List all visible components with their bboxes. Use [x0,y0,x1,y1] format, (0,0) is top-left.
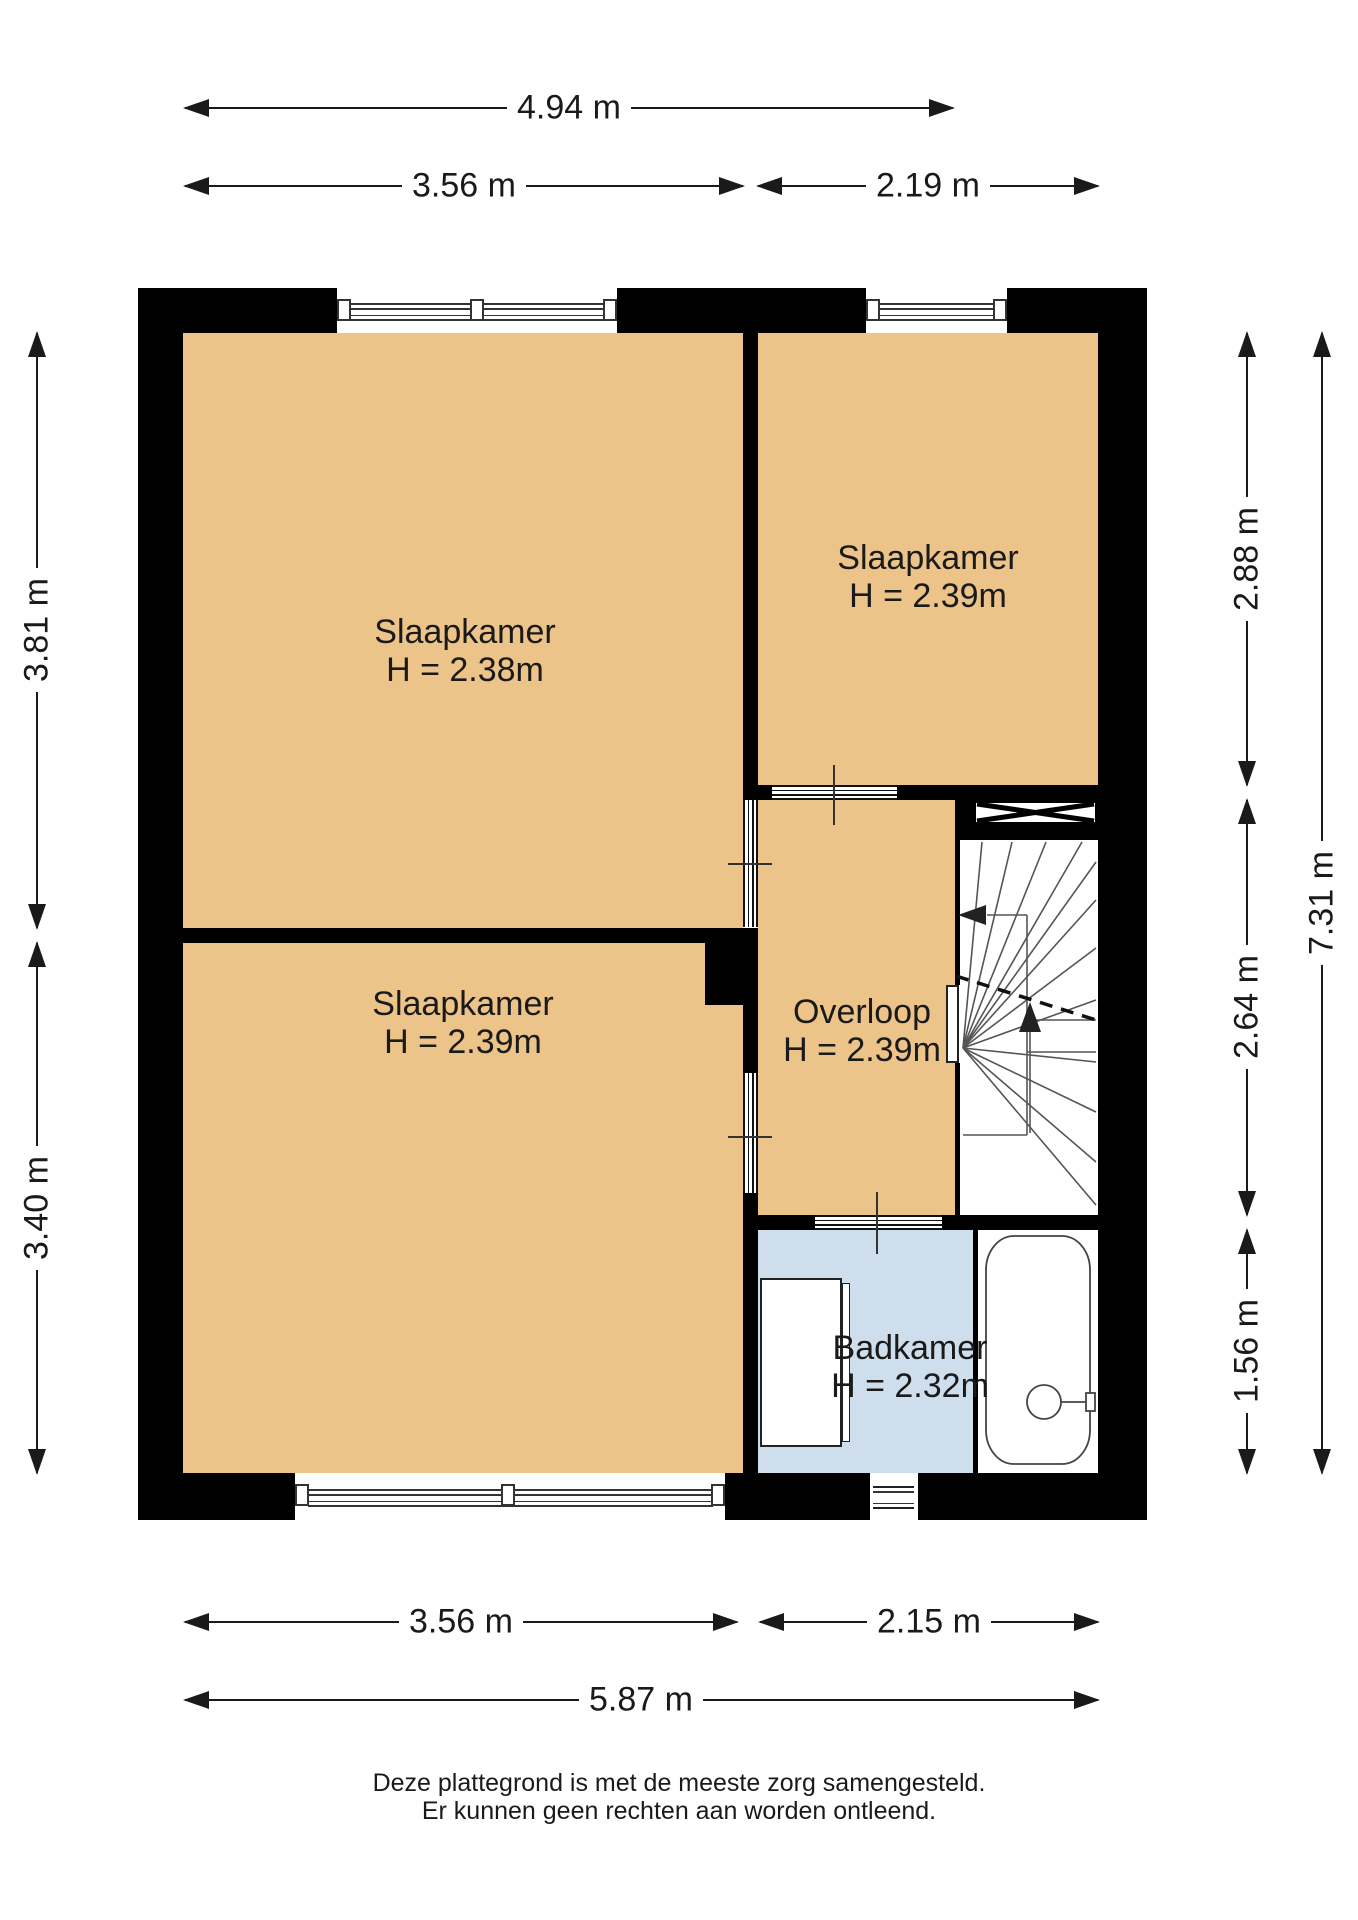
dimension-label-top-overall: 4.94 m [507,89,631,128]
washbasin-vanity [760,1278,842,1447]
bathtub [986,1236,1090,1464]
room-label-bedroom-top-right: Slaapkamer H = 2.39m [837,539,1018,615]
dimension-label-bottom-overall: 5.87 m [579,1681,703,1720]
disclaimer-text: Deze plattegrond is met de meeste zorg s… [373,1769,986,1825]
stair-arrow-up-icon [958,905,986,925]
dimension-label-right-middle: 2.64 m [1228,945,1267,1069]
shower-bracket [1086,1393,1095,1411]
dimension-label-top-left: 3.56 m [402,167,526,206]
room-height: H = 2.32m [831,1367,989,1405]
room-label-bedroom-bottom-left: Slaapkamer H = 2.39m [372,985,553,1061]
room-name: Badkamer [831,1329,989,1367]
disclaimer-line-2: Er kunnen geen rechten aan worden ontlee… [373,1797,986,1825]
dimension-label-right-overall: 7.31 m [1303,841,1342,965]
floorplan-canvas: Slaapkamer H = 2.38m Slaapkamer H = 2.39… [0,0,1358,1920]
stair-door-leaf [946,985,959,1063]
room-height: H = 2.39m [837,577,1018,615]
room-height: H = 2.39m [372,1023,553,1061]
dimension-label-left-lower: 3.40 m [18,1146,57,1270]
dimension-label-bottom-right: 2.15 m [867,1603,991,1642]
shower-head-icon [1027,1385,1061,1419]
shaft-cross-icon [977,804,1094,821]
stair-arrow-down-icon [1019,1002,1041,1032]
room-label-bedroom-top-left: Slaapkamer H = 2.38m [374,613,555,689]
dimension-label-left-upper: 3.81 m [18,568,57,692]
room-name: Slaapkamer [837,539,1018,577]
room-label-landing: Overloop H = 2.39m [783,993,941,1069]
room-height: H = 2.38m [374,651,555,689]
dimension-label-right-lower: 1.56 m [1228,1289,1267,1413]
room-name: Slaapkamer [372,985,553,1023]
room-name: Overloop [783,993,941,1031]
stairs-and-fixtures-layer [0,0,1358,1920]
room-height: H = 2.39m [783,1031,941,1069]
room-name: Slaapkamer [374,613,555,651]
dimension-label-bottom-left: 3.56 m [399,1603,523,1642]
dimension-label-top-right: 2.19 m [866,167,990,206]
dimension-label-right-upper: 2.88 m [1228,497,1267,621]
room-label-bathroom: Badkamer H = 2.32m [831,1329,989,1405]
disclaimer-line-1: Deze plattegrond is met de meeste zorg s… [373,1769,986,1797]
